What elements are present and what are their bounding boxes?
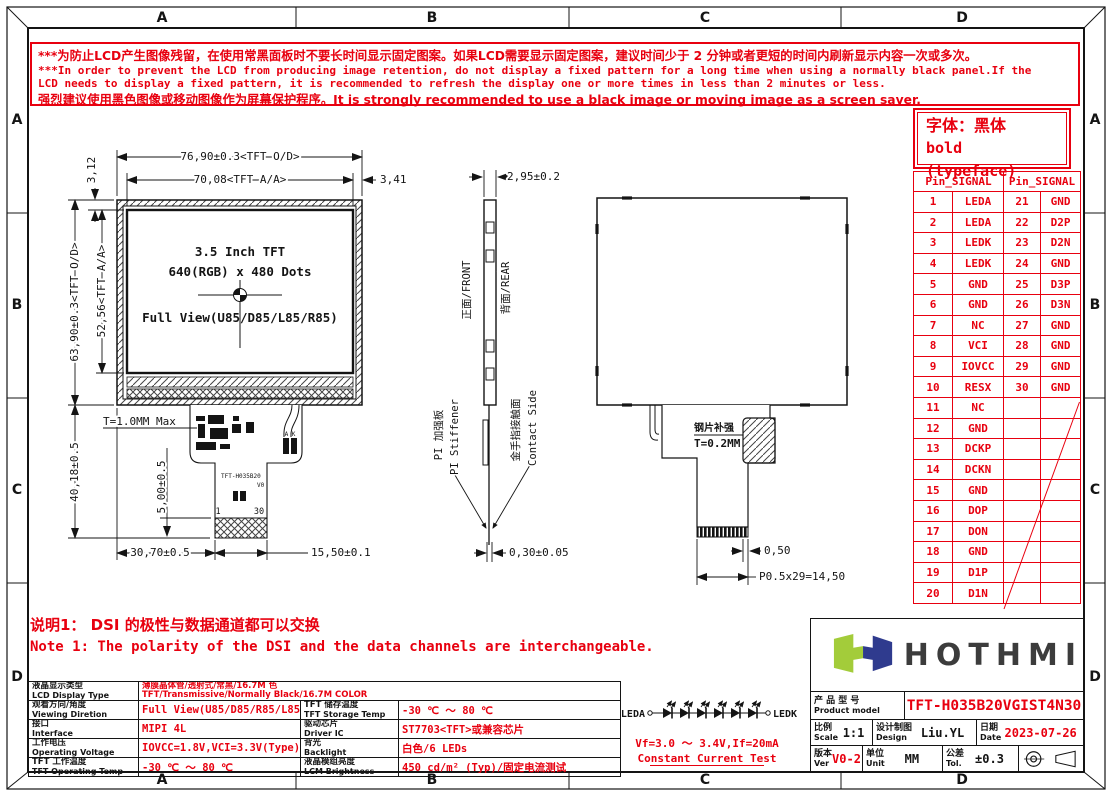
pin-row: 18GND xyxy=(914,542,1081,563)
rear-view: 钢片补强 T=0.2MM 0,50 P0.5x29=14,50 xyxy=(597,198,847,585)
scale-design-date-row: 比例Scale 1:1 设计制图Design Liu.YL 日期Date 202… xyxy=(811,719,1083,745)
zone-top-a: A xyxy=(151,8,173,28)
note-en: Note 1: The polarity of the DSI and the … xyxy=(30,636,654,658)
hothmi-logo-icon xyxy=(821,623,898,687)
spec-row: 观看方向/角度Viewing Diretion Full View(U85/D8… xyxy=(29,701,621,720)
dim-thickness: 2,95±0.2 xyxy=(507,170,560,183)
projection-symbol-icon xyxy=(1023,749,1079,769)
zone-left-b: B xyxy=(6,295,28,315)
dim-height-aa: 52,56<TFT A/A> xyxy=(95,244,108,337)
steel-stiffener-label: 钢片补强 xyxy=(694,421,734,434)
led-test-label: Constant Current Test xyxy=(637,752,776,765)
zone-bottom-c: C xyxy=(694,770,716,790)
screen-size-text: 3.5 Inch TFT xyxy=(195,244,285,259)
fpc-pin30: 30 xyxy=(254,507,264,517)
fpc-thickness-label: T=1.0MM Max xyxy=(103,415,176,428)
warning-line-4: 强烈建议使用黑色图像或移动图像作为屏幕保护程序。It is strongly r… xyxy=(38,90,1072,108)
pin-row: 12GND xyxy=(914,418,1081,439)
spec-row: TFT 工作温度TFT Operating Temp -30 ℃ ～ 80 ℃ … xyxy=(29,758,621,777)
pin-row: 2LEDA22D2P xyxy=(914,212,1081,233)
pin-row: 20D1N xyxy=(914,583,1081,604)
pin-row: 3LEDK23D2N xyxy=(914,233,1081,254)
front-view: 3.5 Inch TFT 640(RGB) x 480 Dots Full Vi… xyxy=(68,150,407,560)
zone-right-b: B xyxy=(1084,295,1106,315)
date-value: 2023-07-26 xyxy=(1001,726,1080,740)
dim-module-total: 40,18±0.5 xyxy=(68,442,81,502)
scale-value: 1:1 xyxy=(838,726,869,740)
fpc-ver-text: V0 xyxy=(257,482,265,489)
fpc-pin1: 1 xyxy=(215,507,220,517)
side-view: 2,95±0.2 0,30±0.05 正面/FRONT 背面/REAR PI S… xyxy=(432,170,569,562)
zone-top-c: C xyxy=(694,8,716,28)
zone-bottom-d: D xyxy=(951,770,973,790)
zone-left-d: D xyxy=(6,667,28,687)
pi-stiffener-cn-label: PI 加强板 xyxy=(432,409,445,460)
product-model-value: TFT-H035B20VGIST4N30 xyxy=(905,698,1083,714)
pin-row: 16DOP xyxy=(914,500,1081,521)
tolerance-value: ±0.3 xyxy=(964,752,1015,766)
contact-side-en-label: Contact Side xyxy=(527,390,539,466)
dim-width-aa: 70,08<TFT A/A> xyxy=(194,173,287,186)
pin-row: 1LEDA21GND xyxy=(914,192,1081,213)
retention-warning-box: ***为防止LCD产生图像残留，在使用常黑面板时不要长时间显示固定图案。如果LC… xyxy=(30,42,1080,106)
zone-left-c: C xyxy=(6,480,28,500)
brand-name: HOTHMI xyxy=(904,638,1083,673)
logo-row: HOTHMI xyxy=(811,619,1083,691)
typeface-note-cn: 字体：黑体 xyxy=(926,114,1058,137)
zone-top-d: D xyxy=(951,8,973,28)
pin-row: 17DON xyxy=(914,521,1081,542)
design-value: Liu.YL xyxy=(912,726,973,740)
dim-fpc-thickness: 0,30±0.05 xyxy=(509,546,569,559)
pin-row: 10RESX30GND xyxy=(914,377,1081,398)
pin-row: 14DCKN xyxy=(914,459,1081,480)
pin-row: 9IOVCC29GND xyxy=(914,356,1081,377)
pin-row: 8VCI28GND xyxy=(914,336,1081,357)
led-anode-label: LEDA xyxy=(621,709,645,720)
warning-line-2: ***In order to prevent the LCD from prod… xyxy=(38,64,1072,77)
pi-stiffener-en-label: PI Stiffener xyxy=(449,399,461,475)
ver-unit-tol-row: 版本Ver V0-2 单位Unit MM 公差Tol. ±0.3 xyxy=(811,745,1083,771)
note-block: 说明1： DSI 的极性与数据通道都可以交换 Note 1: The polar… xyxy=(30,614,654,658)
dim-connector-total: P0.5x29=14,50 xyxy=(759,570,845,583)
led-circuit: LEDA LEDK Vf=3.0 ～ 3.4V,If=20mA Constant… xyxy=(621,701,797,766)
led-cathode-label: LEDK xyxy=(773,709,797,720)
spec-table: 液晶显示类型LCD Display Type 薄膜晶体管/透射式/常黑/16.7… xyxy=(28,681,621,777)
fpc-bl-pads-label: A K xyxy=(285,431,296,438)
side-rear-label: 背面/REAR xyxy=(499,261,512,314)
version-value: V0-2 xyxy=(832,752,861,766)
pin-row: 15GND xyxy=(914,480,1081,501)
dim-fpc-width: 15,50±0.1 xyxy=(311,546,371,559)
zone-right-c: C xyxy=(1084,480,1106,500)
fpc-model-text: TFT-H035B20 xyxy=(221,473,261,480)
pin-row: 5GND25D3P xyxy=(914,274,1081,295)
dim-border-top: 3,12 xyxy=(85,157,98,184)
typeface-note-box: 字体：黑体 bold (typeface) xyxy=(913,108,1071,169)
steel-thickness-label: T=0.2MM xyxy=(694,437,741,450)
zone-top-b: B xyxy=(421,8,443,28)
zone-right-a: A xyxy=(1084,110,1106,130)
zone-left-a: A xyxy=(6,110,28,130)
contact-side-cn-label: 金手指接触面 xyxy=(509,399,522,462)
warning-line-3: LCD needs to display a fixed pattern, it… xyxy=(38,77,1072,90)
pin-row: 4LEDK24GND xyxy=(914,253,1081,274)
dim-height-od: 63,90±0.3<TFT O/D> xyxy=(68,242,81,362)
pin-row: 6GND26D3N xyxy=(914,294,1081,315)
unit-value: MM xyxy=(885,752,939,766)
rear-dim-lines xyxy=(697,539,761,585)
pin-row: 7NC27GND xyxy=(914,315,1081,336)
pin-row: 11NC xyxy=(914,397,1081,418)
dim-width-od: 76,90±0.3<TFT O/D> xyxy=(180,150,300,163)
dim-fpc-offset: 5,00±0.5 xyxy=(155,461,168,514)
dim-border-right: 3,41 xyxy=(380,173,407,186)
note-cn: 说明1： DSI 的极性与数据通道都可以交换 xyxy=(30,614,654,636)
dim-pitch: 0,50 xyxy=(764,544,791,557)
product-model-row: 产 品 型 号Product model TFT-H035B20VGIST4N3… xyxy=(811,691,1083,719)
warning-line-1: ***为防止LCD产生图像残留，在使用常黑面板时不要长时间显示固定图案。如果LC… xyxy=(38,46,1072,64)
led-vf-spec: Vf=3.0 ～ 3.4V,If=20mA xyxy=(635,737,779,750)
spec-row: 工作电压Operating Voltage IOVCC=1.8V,VCI=3.3… xyxy=(29,739,621,758)
pin-row: 13DCKP xyxy=(914,439,1081,460)
datasheet-page: 3.5 Inch TFT 640(RGB) x 480 Dots Full Vi… xyxy=(0,0,1112,796)
zone-right-d: D xyxy=(1084,667,1106,687)
spec-row: 液晶显示类型LCD Display Type 薄膜晶体管/透射式/常黑/16.7… xyxy=(29,682,621,701)
dim-fpc-left: 30,70±0.5 xyxy=(130,546,190,559)
pin-signal-table: Pin_SIGNAL Pin_SIGNAL 1LEDA21GND 2LEDA22… xyxy=(913,171,1081,604)
side-front-label: 正面/FRONT xyxy=(461,260,473,320)
screen-view-text: Full View(U85/D85/L85/R85) xyxy=(142,310,338,325)
pin-table-header: Pin_SIGNAL Pin_SIGNAL xyxy=(914,172,1081,192)
pin-row: 19D1P xyxy=(914,562,1081,583)
spec-row: 接口Interface MIPI 4L 驱动芯片Driver IC ST7703… xyxy=(29,720,621,739)
title-block: HOTHMI 产 品 型 号Product model TFT-H035B20V… xyxy=(810,618,1084,772)
screen-res-text: 640(RGB) x 480 Dots xyxy=(169,264,312,279)
